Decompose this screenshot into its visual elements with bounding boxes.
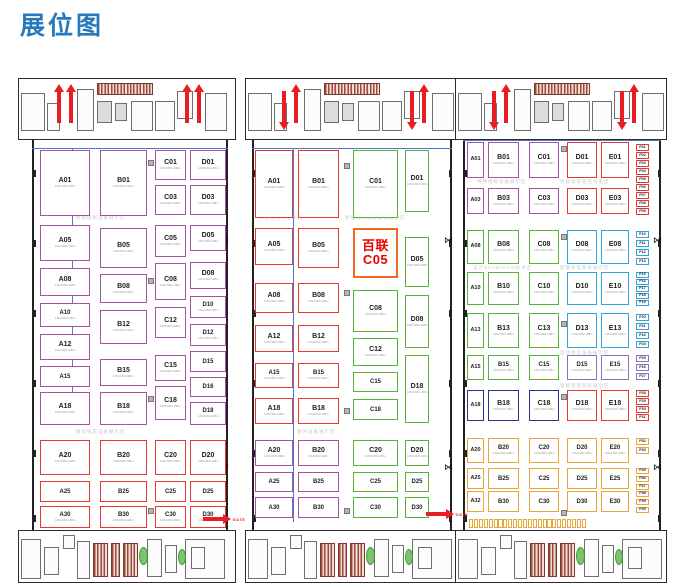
booth-label: F35 <box>639 469 646 473</box>
booth-label: F39 <box>639 500 646 504</box>
booth-E15: E1512M×9M=108m <box>601 355 629 380</box>
booth-B01: B0112M×9M=108m <box>488 142 519 178</box>
booth-size-note: 12M×9M=108m <box>264 187 285 190</box>
building-bottom-structure <box>245 530 457 583</box>
room <box>358 101 380 131</box>
booth-label: D30 <box>411 505 422 511</box>
booth-label: C25 <box>370 479 381 485</box>
booth-B12: B1212M×9M=108m <box>100 310 147 344</box>
booth-label: D05 <box>411 256 424 263</box>
booth-size-note: 12M×9M=108m <box>55 519 76 522</box>
room <box>21 93 45 131</box>
booth-label: D25 <box>411 479 422 485</box>
room <box>481 547 496 575</box>
booth-label: C25 <box>165 489 176 495</box>
booth-F05: F05 <box>636 176 649 183</box>
booth-B08: B0812M×9M=108m <box>298 283 339 313</box>
booth-B08: B0812M×9M=108m <box>100 274 147 303</box>
booth-size-note: 12M×9M=108m <box>198 416 219 419</box>
room <box>592 101 612 131</box>
booth-C08: C0812M×9M=108m <box>353 290 398 332</box>
booth-size-note: 12M×9M=108m <box>160 284 181 287</box>
booth-D25: D25 <box>190 481 226 502</box>
wall-column <box>463 450 467 457</box>
booth-C18: C1812M×9M=108m <box>155 386 186 420</box>
booth-label: D25 <box>576 476 587 482</box>
stairs <box>548 543 557 577</box>
booth-C30: C30 <box>529 491 559 512</box>
booth-size-note: 12M×9M=108m <box>198 460 219 463</box>
booth-label: B20 <box>498 445 509 451</box>
booth-label: F21 <box>639 325 646 329</box>
mini-booth <box>494 519 498 528</box>
zone-label: 缝前缝后设备展示区 <box>76 429 126 435</box>
booth-size-note: 12M×9M=108m <box>407 456 428 459</box>
booth-size-note: 12M×9M=108m <box>113 460 134 463</box>
booth-label: A30 <box>268 505 279 511</box>
booth-A30: A30 <box>255 497 293 518</box>
booth-F07: F07 <box>636 192 649 199</box>
booth-B01: B0112M×9M=108m <box>100 150 147 216</box>
booth-label: D13 <box>576 325 589 332</box>
booth-F35: F35 <box>636 468 649 474</box>
booth-F17: F17 <box>636 286 649 292</box>
plant <box>576 547 585 565</box>
booth-F04: F04 <box>636 168 649 175</box>
booth-label: C15 <box>370 379 381 385</box>
booth-F27: F27 <box>636 373 649 380</box>
booth-label: E01 <box>609 154 621 161</box>
booth-D10: D1012M×9M=108m <box>567 272 597 305</box>
grid-line <box>293 148 294 522</box>
booth-label: A20 <box>59 452 72 459</box>
mini-booth <box>469 519 473 528</box>
booth-D08: D0812M×9M=108m <box>405 295 429 348</box>
booth-label: D03 <box>202 194 215 201</box>
booth-size-note: 12M×9M=108m <box>264 301 285 304</box>
booth-label: F31 <box>639 416 646 420</box>
booth-label: B18 <box>312 405 325 412</box>
booth-label: F40 <box>639 508 646 512</box>
booth-C10: C1012M×9M=108m <box>529 272 559 305</box>
booth-size-note: 12M×9M=108m <box>605 370 626 373</box>
wall-column <box>449 170 453 177</box>
booth-size-note: 12M×9M=108m <box>605 250 626 253</box>
booth-label: A08 <box>268 292 281 299</box>
booth-A01: A01 <box>467 142 484 178</box>
booth-D05: D0512M×9M=108m <box>405 237 429 287</box>
booth-size-note: 12M×9M=108m <box>534 204 555 207</box>
booth-label: A13 <box>470 328 480 334</box>
booth-C01: C0112M×9M=108m <box>353 150 398 218</box>
wall-column <box>658 380 662 387</box>
booth-A25: A25 <box>40 481 90 502</box>
booth-label: C08 <box>164 276 177 283</box>
booth-size-note: 12M×9M=108m <box>605 408 626 411</box>
booth-D08: D0812M×9M=108m <box>567 230 597 264</box>
wall-column <box>463 240 467 247</box>
booth-size-note: 12M×9M=108m <box>605 204 626 207</box>
room <box>382 101 402 131</box>
stairs <box>560 543 575 577</box>
booth-label: E15 <box>610 362 621 368</box>
mini-booth <box>503 519 507 528</box>
entrance-arrow-icon <box>197 91 201 123</box>
booth-A10: A10 <box>467 272 484 305</box>
highlighted-booth-C05: 百联C05 <box>353 228 398 278</box>
stairs <box>123 543 138 577</box>
booth-label: A01 <box>59 177 72 184</box>
booth-label: F38 <box>639 492 646 496</box>
booth-label: F30 <box>639 408 646 412</box>
booth-label: D08 <box>411 316 424 323</box>
booth-size-note: 12M×9M=108m <box>572 408 593 411</box>
booth-B18: B1812M×9M=108m <box>488 390 519 421</box>
booth-size-note: 12M×9M=108m <box>55 186 76 189</box>
booth-label: D30 <box>576 499 587 505</box>
booth-A18: A18 <box>467 390 484 421</box>
room <box>304 89 321 131</box>
stairs <box>530 543 545 577</box>
booth-D20: D2012M×9M=108m <box>190 440 226 475</box>
plant <box>366 547 375 565</box>
booth-F32: F32 <box>636 438 649 445</box>
booth-F13: F13 <box>636 258 649 265</box>
booth-E18: E1812M×9M=108m <box>601 390 629 421</box>
booth-label: F09 <box>639 210 646 214</box>
booth-D18: D1812M×9M=108m <box>405 355 429 423</box>
booth-label: F23 <box>639 343 646 347</box>
booth-size-note: 12M×9M=108m <box>534 291 555 294</box>
booth-F06: F06 <box>636 184 649 191</box>
booth-label: A25 <box>268 479 279 485</box>
booth-A08: A0812M×9M=108m <box>40 268 90 296</box>
booth-label: E03 <box>609 195 621 202</box>
booth-label: B25 <box>313 479 324 485</box>
booth-E25: E25 <box>601 468 629 489</box>
booth-D25: D25 <box>567 468 597 489</box>
booth-label: F18 <box>639 294 646 298</box>
booth-label: E18 <box>609 400 621 407</box>
zone-label: 智能缝前缝后设备区 <box>560 179 610 185</box>
gate-arrow-shaft <box>203 517 223 521</box>
door-swing-symbol: ⋈ <box>444 236 453 245</box>
room <box>418 547 432 569</box>
booth-size-note: 12M×9M=108m <box>198 337 219 340</box>
booth-label: B20 <box>117 452 130 459</box>
booth-label: C20 <box>538 445 549 451</box>
booth-size-note: 12M×9M=108m <box>365 314 386 317</box>
gate-arrow: GATE <box>426 509 468 519</box>
zone-label: 设计&CAD/CAM技术区 <box>473 265 532 271</box>
booth-A12: A1212M×9M=108m <box>255 325 293 352</box>
booth-label: D18 <box>576 400 589 407</box>
booth-F03: F03 <box>636 160 649 167</box>
booth-size-note: 12M×9M=108m <box>365 187 386 190</box>
booth-label: C05 <box>164 235 177 242</box>
booth-size-note: 12M×9M=108m <box>308 187 329 190</box>
booth-label: F26 <box>639 366 646 370</box>
booth-label: F16 <box>639 280 646 284</box>
booth-label: D20 <box>576 445 587 451</box>
room <box>147 539 162 577</box>
stairs <box>111 543 120 577</box>
highlight-company-name: 百联 <box>362 239 389 253</box>
booth-C15: C15 <box>353 372 398 392</box>
booth-size-note: 12M×9M=108m <box>264 341 285 344</box>
room <box>602 545 614 573</box>
room <box>392 545 404 573</box>
booth-label: A08 <box>470 244 480 250</box>
booth-B03: B0312M×9M=108m <box>488 188 519 214</box>
booth-size-note: 12M×9M=108m <box>160 406 181 409</box>
booth-A32: A32 <box>467 491 484 512</box>
booth-F39: F39 <box>636 499 649 505</box>
booth-B18: B1812M×9M=108m <box>298 398 339 424</box>
booth-label: B08 <box>312 292 325 299</box>
booth-size-note: 12M×9M=108m <box>572 291 593 294</box>
booth-label: F03 <box>639 162 646 166</box>
building-top-structure <box>455 78 667 140</box>
booth-label: A05 <box>268 241 281 248</box>
booth-label: F04 <box>639 170 646 174</box>
mini-booth <box>518 519 522 528</box>
booth-label: D08 <box>576 241 589 248</box>
booth-B25: B25 <box>488 468 519 489</box>
booth-label: D16 <box>202 384 213 390</box>
booth-F30: F30 <box>636 406 649 413</box>
booth-size-note: 12M×9M=108m <box>605 291 626 294</box>
booth-label: F20 <box>639 316 646 320</box>
booth-label: D18 <box>202 408 213 414</box>
mini-booth <box>557 519 561 528</box>
booth-B15: B1512M×9M=108m <box>298 363 339 388</box>
gate-arrow-head <box>446 509 454 519</box>
booth-label: A12 <box>59 341 72 348</box>
room <box>628 547 642 569</box>
booth-size-note: 12M×9M=108m <box>534 250 555 253</box>
entrance-arrow-icon <box>632 91 636 123</box>
plant <box>615 549 623 565</box>
booth-label: F08 <box>639 202 646 206</box>
mini-booth <box>562 519 566 528</box>
mini-booth <box>543 519 547 528</box>
room <box>205 93 227 131</box>
booth-label: C20 <box>164 452 177 459</box>
booth-label: A03 <box>470 198 480 204</box>
booth-label: C15 <box>164 362 177 369</box>
booth-D16: D16 <box>190 377 226 397</box>
stairs <box>97 83 153 95</box>
booth-label: F32 <box>639 440 646 444</box>
booth-A13: A13 <box>467 313 484 348</box>
pillar <box>148 160 154 166</box>
room <box>458 539 478 579</box>
booth-A01: A0112M×9M=108m <box>40 150 90 216</box>
booth-label: C18 <box>538 400 551 407</box>
booth-label: B08 <box>117 283 130 290</box>
booth-C01: C0112M×9M=108m <box>155 150 186 180</box>
plant <box>405 549 413 565</box>
booth-B30: B30 <box>488 491 519 512</box>
booth-B20: B2012M×9M=108m <box>488 438 519 463</box>
booth-A03: A03 <box>467 188 484 214</box>
booth-F23: F23 <box>636 341 649 348</box>
booth-size-note: 12M×9M=108m <box>493 204 514 207</box>
room <box>514 541 527 579</box>
booth-C25: C25 <box>529 468 559 489</box>
booth-size-note: 12M×9M=108m <box>198 241 219 244</box>
grid-line <box>32 148 228 149</box>
gate-arrow: GATE <box>203 514 245 524</box>
booth-F11: F11 <box>636 240 649 247</box>
booth-label: C15 <box>538 362 549 368</box>
elevator-block <box>534 101 549 123</box>
booth-size-note: 12M×9M=108m <box>264 456 285 459</box>
wall-column <box>449 310 453 317</box>
pillar <box>148 396 154 402</box>
booth-label: B10 <box>497 283 510 290</box>
mini-booth <box>508 519 512 528</box>
booth-label: A25 <box>470 476 480 482</box>
booth-size-note: 12M×9M=108m <box>534 453 555 456</box>
booth-C15: C1512M×9M=108m <box>155 355 186 381</box>
wall-column <box>32 450 36 457</box>
zone-label: 智能吊挂系统展示区 <box>560 265 610 271</box>
booth-size-note: 12M×9M=108m <box>160 168 181 171</box>
booth-label: C30 <box>370 505 381 511</box>
mini-booth <box>552 519 556 528</box>
room <box>155 101 175 131</box>
booth-size-note: 12M×9M=108m <box>160 460 181 463</box>
booth-label: F01 <box>639 146 646 150</box>
booth-size-note: 12M×9M=108m <box>407 184 428 187</box>
booth-label: A18 <box>470 403 480 409</box>
booth-E08: E0812M×9M=108m <box>601 230 629 264</box>
booth-C20: C2012M×9M=108m <box>529 438 559 463</box>
mini-booth <box>567 519 571 528</box>
booth-label: C12 <box>369 346 382 353</box>
booth-C13: C1312M×9M=108m <box>529 313 559 348</box>
wall-column <box>463 310 467 317</box>
room <box>432 93 454 131</box>
mini-booth <box>498 519 502 528</box>
booth-label: F28 <box>639 392 646 396</box>
room <box>131 101 153 131</box>
mini-booth <box>528 519 532 528</box>
wall-column <box>463 170 467 177</box>
booth-A15: A15 <box>40 366 90 387</box>
booth-D15: D15 <box>190 351 226 372</box>
building-bottom-structure <box>18 530 236 583</box>
booth-D20: D2012M×9M=108m <box>405 440 429 466</box>
booth-size-note: 12M×9M=108m <box>308 251 329 254</box>
wall-column <box>32 170 36 177</box>
booth-F02: F02 <box>636 152 649 159</box>
booth-F08: F08 <box>636 200 649 207</box>
booth-label: A05 <box>59 237 72 244</box>
mini-booth <box>479 519 483 528</box>
booth-size-note: 12M×9M=108m <box>160 244 181 247</box>
booth-size-note: 12M×9M=108m <box>365 456 386 459</box>
pillar <box>148 278 154 284</box>
booth-label: B05 <box>312 242 325 249</box>
booth-size-note: 12M×9M=108m <box>572 204 593 207</box>
booth-size-note: 12M×9M=108m <box>605 453 626 456</box>
gate-arrow-head <box>223 514 231 524</box>
mini-booth <box>547 519 551 528</box>
wall-column <box>32 515 36 522</box>
booth-label: C01 <box>164 159 177 166</box>
booth-label: A25 <box>59 489 70 495</box>
booth-B25: B25 <box>100 481 147 502</box>
room <box>500 535 512 549</box>
wall-column <box>32 310 36 317</box>
booth-A20: A2012M×9M=108m <box>255 440 293 466</box>
booth-A20: A20 <box>467 438 484 463</box>
booth-size-note: 12M×9M=108m <box>308 301 329 304</box>
booth-label: F25 <box>639 357 646 361</box>
room <box>271 547 286 575</box>
room <box>21 539 41 579</box>
booth-label: C25 <box>538 476 549 482</box>
booth-E30: E30 <box>601 491 629 512</box>
booth-A18: A1812M×9M=108m <box>255 398 293 424</box>
elevator-block <box>342 103 354 121</box>
stairs <box>324 83 380 95</box>
booth-size-note: 12M×9M=108m <box>198 278 219 281</box>
stairs <box>350 543 365 577</box>
room <box>642 93 664 131</box>
booth-label: E25 <box>610 476 621 482</box>
pillar <box>344 508 350 514</box>
mini-booth <box>513 519 517 528</box>
booth-F09: F09 <box>636 208 649 215</box>
booth-label: B08 <box>497 241 510 248</box>
wall-column <box>658 310 662 317</box>
zone-label: 激光设备展示区 <box>297 429 336 435</box>
booth-size-note: 12M×9M=108m <box>55 246 76 249</box>
booth-size-note: 12M×9M=108m <box>572 163 593 166</box>
booth-size-note: 12M×9M=108m <box>198 203 219 206</box>
wall-column <box>658 450 662 457</box>
booth-label: D01 <box>411 175 424 182</box>
booth-label: F10 <box>639 233 646 237</box>
booth-size-note: 12M×9M=108m <box>264 414 285 417</box>
wall-column <box>463 380 467 387</box>
booth-C08: C0812M×9M=108m <box>529 230 559 264</box>
grid-line <box>252 148 452 149</box>
booth-size-note: 12M×9M=108m <box>198 168 219 171</box>
booth-label: A01 <box>470 157 480 163</box>
room <box>191 547 205 569</box>
stairs <box>320 543 335 577</box>
booth-label: C20 <box>369 447 382 454</box>
booth-C01: C0112M×9M=108m <box>529 142 559 178</box>
booth-size-note: 12M×9M=108m <box>55 411 76 414</box>
booth-label: A10 <box>59 310 70 316</box>
booth-label: B30 <box>118 512 129 518</box>
booth-size-note: 12M×9M=108m <box>113 375 134 378</box>
booth-label: F17 <box>639 287 646 291</box>
entrance-arrow-icon <box>422 91 426 123</box>
booth-label: B01 <box>117 177 130 184</box>
booth-C18: C18 <box>353 399 398 420</box>
room <box>248 93 272 131</box>
booth-B15: B1512M×9M=108m <box>100 359 147 386</box>
booth-label: D18 <box>411 383 424 390</box>
booth-size-note: 12M×9M=108m <box>407 324 428 327</box>
